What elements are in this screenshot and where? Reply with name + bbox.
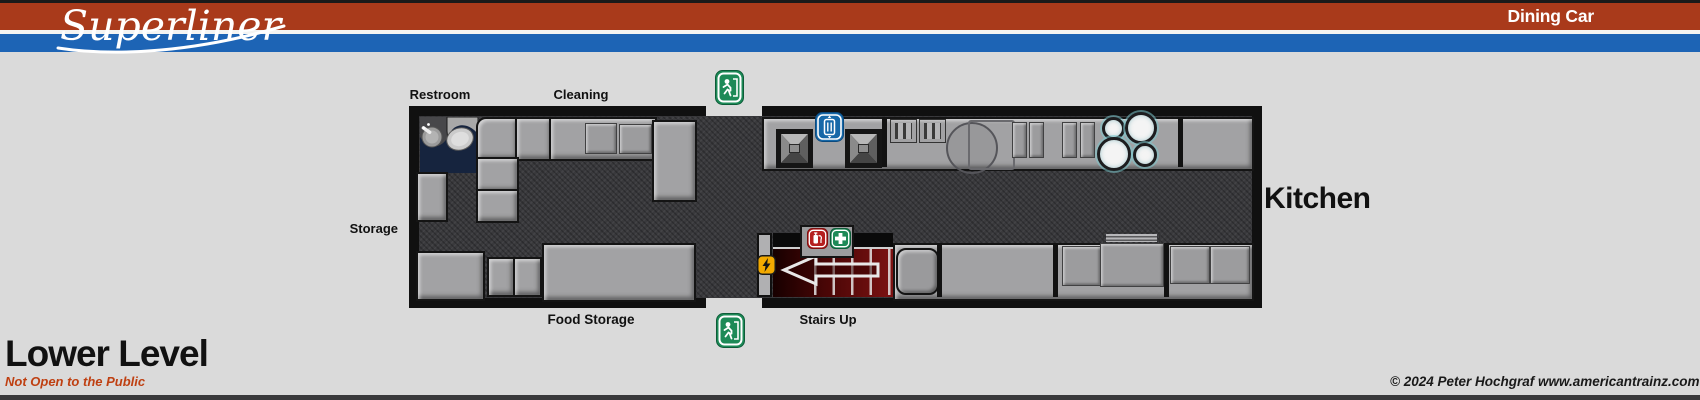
vent-grill (890, 119, 917, 143)
cabinet (476, 157, 519, 193)
brand-text: Superliner (60, 2, 283, 50)
counter-appliance (1100, 243, 1164, 287)
footer-bar (0, 395, 1700, 400)
counter-appliance (1080, 122, 1095, 158)
cabinet (476, 117, 519, 161)
door-gap-bottom (706, 298, 762, 308)
fire-extinguisher-icon (807, 228, 828, 249)
label-food-storage: Food Storage (531, 312, 651, 327)
label-cleaning: Cleaning (546, 87, 616, 102)
counter-appliance (585, 123, 617, 154)
exit-icon (715, 70, 744, 105)
label-storage: Storage (298, 221, 398, 236)
storage-counter (416, 251, 485, 301)
superliner-dining-car-lower-level-diagram: { "header": { "brand": "Superliner", "ca… (0, 0, 1700, 400)
rounded-appliance (896, 248, 939, 295)
counter-appliance (1062, 246, 1101, 286)
label-restroom: Restroom (404, 87, 476, 102)
first-aid-icon (830, 228, 851, 249)
counter-appliance (1210, 246, 1250, 284)
level-title: Lower Level (5, 333, 208, 375)
copyright: © 2024 Peter Hochgraf www.americantrainz… (1390, 374, 1692, 389)
vent-grill (919, 119, 946, 143)
counter-divider (1164, 243, 1169, 297)
prep-station-outline (968, 120, 1015, 170)
range-burner (1133, 143, 1157, 167)
counter-divider (937, 243, 942, 297)
food-storage-counter (542, 243, 696, 302)
car-type-label: Dining Car (1508, 6, 1594, 27)
cabinet (476, 189, 519, 223)
range-burner (1097, 137, 1131, 171)
cabinet (515, 117, 553, 161)
exit-icon (716, 313, 745, 348)
cabinet (416, 172, 448, 222)
restriction-note: Not Open to the Public (5, 374, 145, 389)
label-kitchen: Kitchen (1264, 182, 1371, 216)
dumbwaiter-shaft (845, 129, 882, 168)
range-burner (1125, 112, 1157, 144)
counter-appliance (1012, 122, 1027, 158)
dumbwaiter-lift-icon (815, 112, 844, 142)
cabinet (513, 257, 542, 297)
superliner-logo: Superliner (46, 0, 306, 58)
counter-appliance (1029, 122, 1044, 158)
tall-cabinet (652, 120, 697, 202)
counter-divider (1178, 117, 1183, 167)
counter-appliance (1170, 246, 1210, 284)
label-stairs-up: Stairs Up (788, 312, 868, 327)
counter-divider (882, 117, 887, 167)
counter-appliance (619, 124, 652, 154)
electrical-hazard-icon (757, 255, 776, 275)
counter-divider (1053, 243, 1058, 297)
door-gap-top (706, 106, 762, 116)
cabinet (487, 257, 515, 297)
counter-appliance (1062, 122, 1077, 158)
dumbwaiter-shaft (776, 129, 813, 168)
restroom-area (420, 117, 478, 173)
